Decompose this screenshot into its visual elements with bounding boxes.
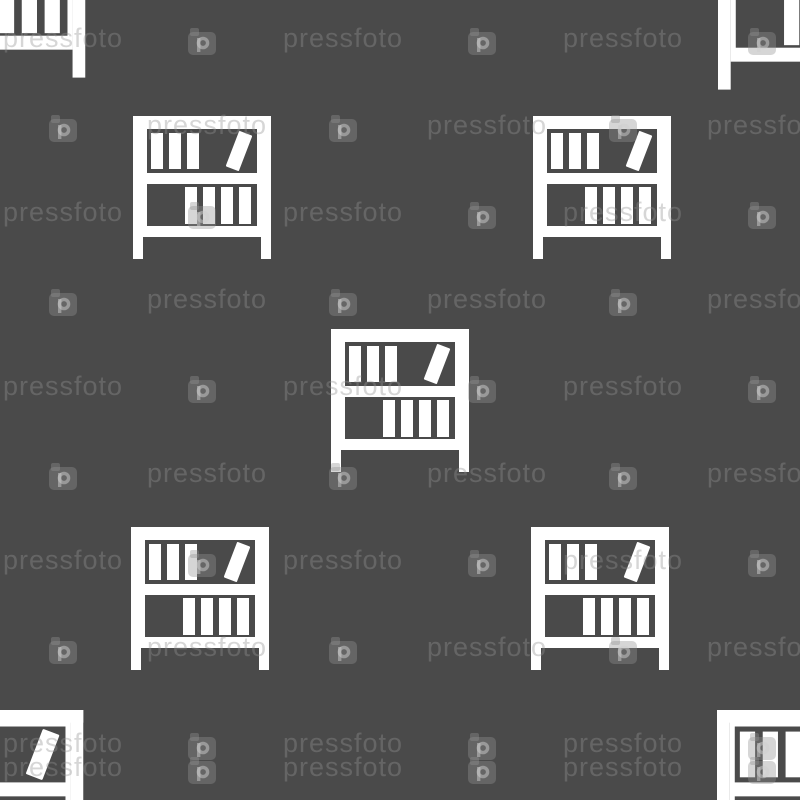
bookshelf-icon <box>331 329 469 472</box>
bookshelf-icon <box>717 710 800 800</box>
bookshelf-icon <box>718 0 800 90</box>
bookshelf-icon <box>131 527 269 670</box>
bookshelf-icon <box>533 116 671 259</box>
bookshelf-pattern <box>0 0 800 800</box>
pattern-background: pressfotopressfotopressfotopressfotopres… <box>0 0 800 800</box>
bookshelf-icon <box>531 527 669 670</box>
bookshelf-icon <box>0 0 85 78</box>
bookshelf-icon <box>133 116 271 259</box>
bookshelf-icon <box>0 710 83 800</box>
